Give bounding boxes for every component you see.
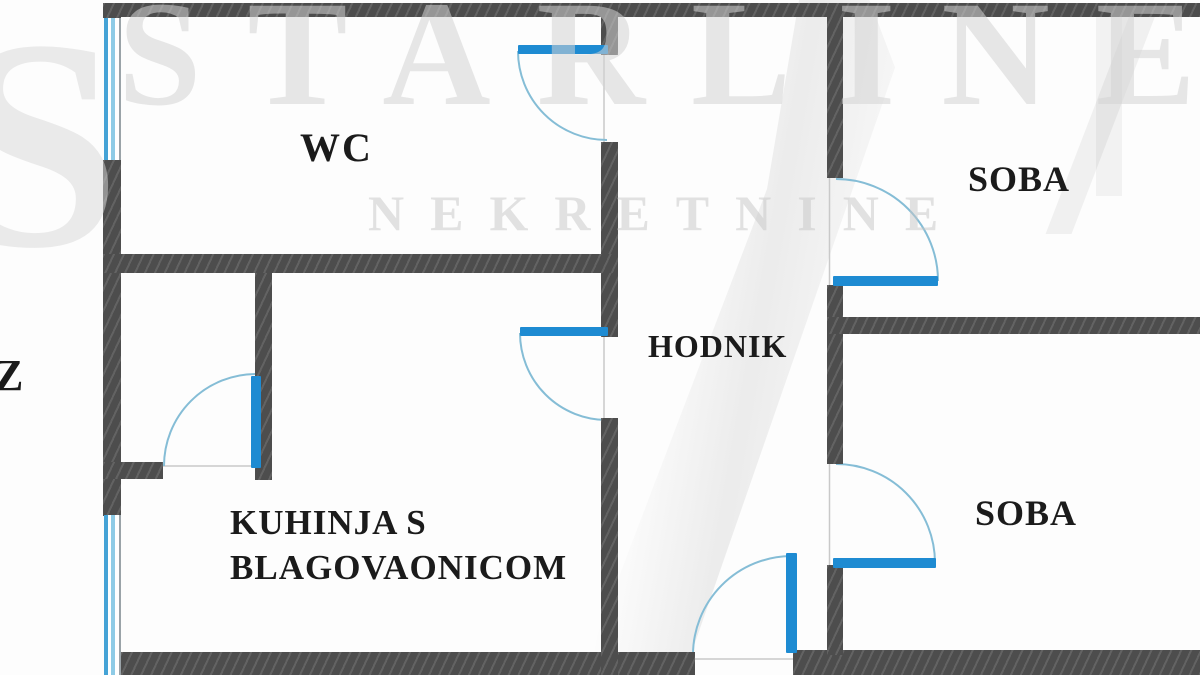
window-pane — [111, 18, 115, 160]
door-arc-soba-top — [836, 179, 938, 281]
door-swings-layer — [0, 0, 1200, 675]
wall-left-corner — [103, 3, 121, 18]
wall-below-wc — [103, 254, 618, 273]
edge-label-partial-z: Z — [0, 350, 24, 401]
wall-bottom-right-segment — [793, 650, 1200, 675]
door-leaf-entrance — [786, 553, 797, 653]
door-arc-kitchen — [520, 333, 607, 420]
room-label-kitchen-line1: KUHINJA S — [230, 503, 427, 543]
wall-hodnik-left-lower — [601, 418, 618, 675]
wall-top — [103, 3, 1200, 17]
room-label-soba-top: SOBA — [968, 158, 1070, 200]
door-leaf-kitchen — [520, 327, 608, 336]
room-label-kitchen-line2: BLAGOVAONICOM — [230, 548, 567, 588]
floor-plan: WC HODNIK SOBA SOBA KUHINJA S BLAGOVAONI… — [0, 0, 1200, 675]
wall-closet-bottom — [103, 462, 163, 479]
room-label-soba-bottom: SOBA — [975, 492, 1077, 534]
door-arc-closet — [164, 374, 256, 466]
door-arc-wc — [518, 51, 607, 140]
door-leaf-soba-top — [833, 276, 938, 286]
room-label-wc: WC — [300, 124, 373, 171]
door-arc-soba-bottom — [836, 464, 935, 563]
wall-hodnik-left-middle — [601, 142, 618, 337]
window-pane — [111, 515, 115, 675]
room-label-hodnik: HODNIK — [648, 328, 787, 365]
door-leaf-closet — [251, 376, 261, 468]
wall-hodnik-right-lower — [827, 565, 843, 655]
door-leaf-wc — [518, 45, 608, 54]
wall-between-sobas — [827, 317, 1200, 334]
window-left-lower — [104, 515, 121, 675]
door-leaf-soba-bottom — [833, 558, 936, 568]
wall-hodnik-right-upper — [827, 3, 843, 178]
door-arc-entrance — [693, 556, 791, 655]
wall-hodnik-right-middle — [827, 285, 843, 464]
window-left-upper — [104, 18, 121, 160]
